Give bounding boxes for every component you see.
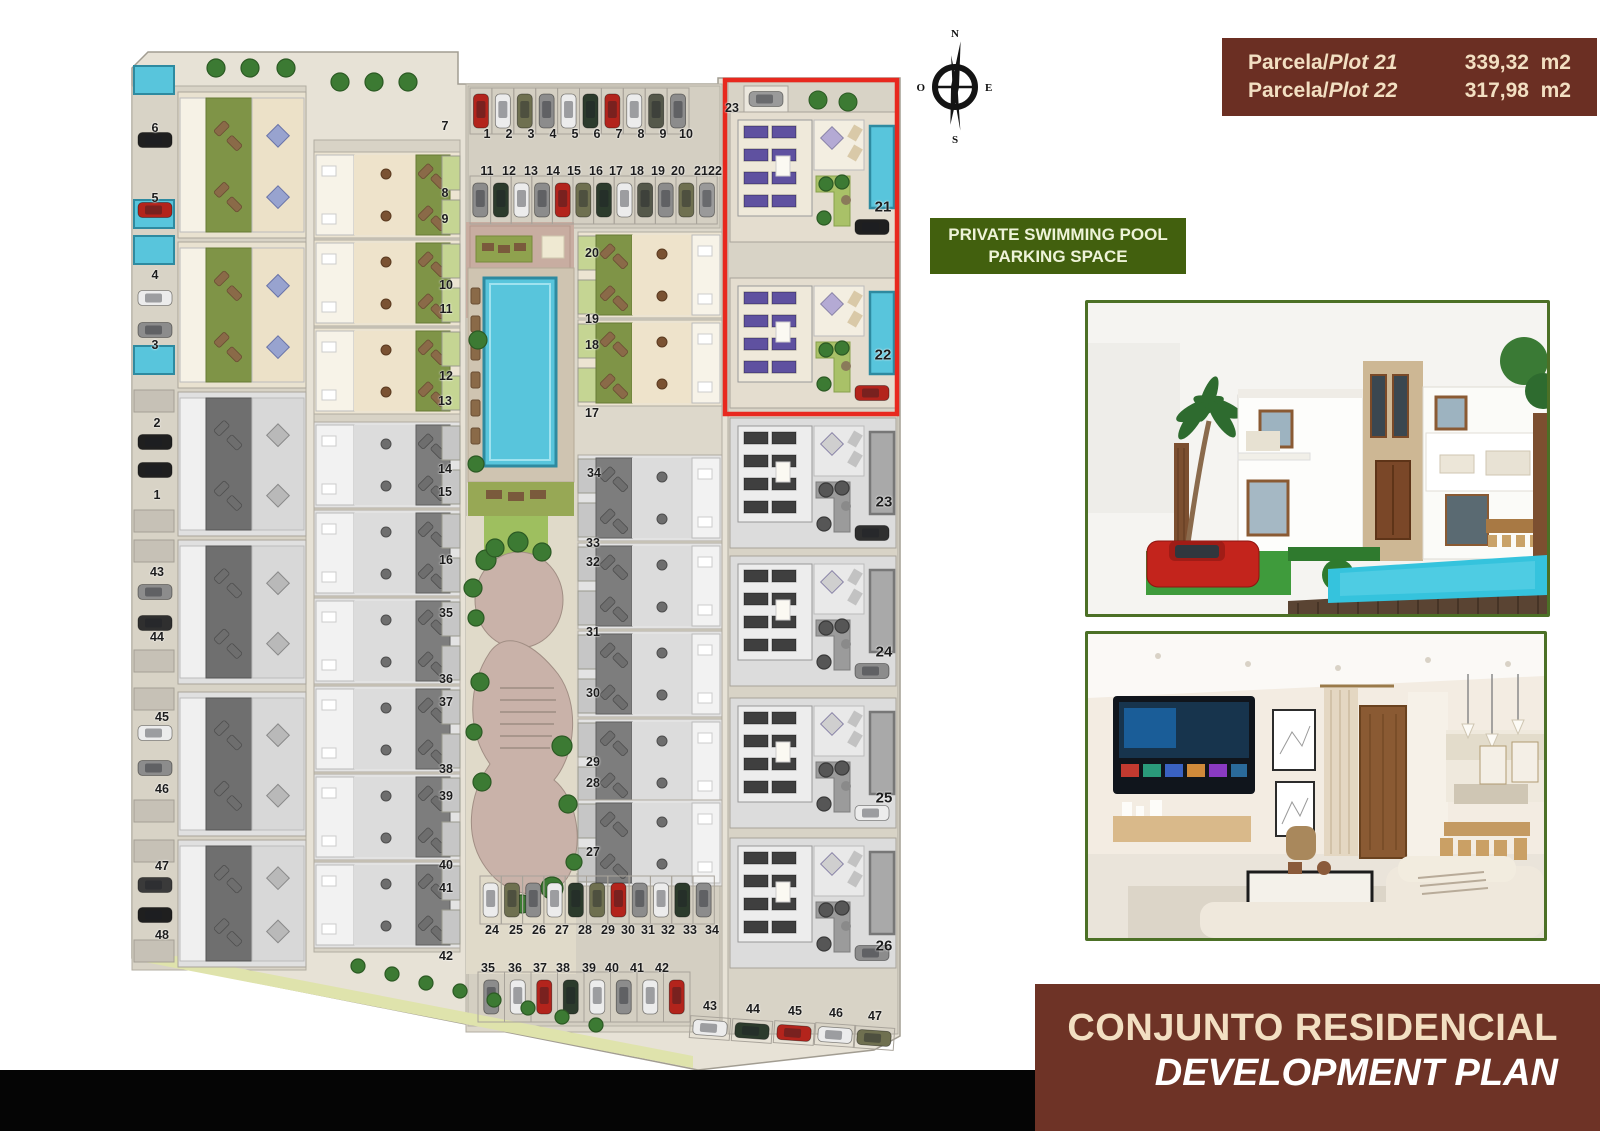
title-banner: CONJUNTO RESIDENCIAL DEVELOPMENT PLAN xyxy=(1035,984,1600,1131)
compass-n: N xyxy=(951,28,959,40)
banner-title-en: DEVELOPMENT PLAN xyxy=(1035,1051,1558,1096)
tv xyxy=(1113,696,1255,794)
red-car xyxy=(1147,541,1259,587)
badge-line-2: PARKING SPACE xyxy=(988,246,1127,268)
development-plan-page: 1234567891011121314151617181920212223789… xyxy=(0,0,1600,1131)
communal-pool-garden xyxy=(464,222,582,974)
plot-info-row-22: Parcela/Plot 22 317,98 m2 xyxy=(1248,78,1571,104)
banner-title-es: CONJUNTO RESIDENCIAL xyxy=(1035,1006,1558,1051)
communal-pool xyxy=(484,278,556,466)
plot-info-box: Parcela/Plot 21 339,32 m2 Parcela/Plot 2… xyxy=(1222,38,1597,116)
townhouse-column-1 xyxy=(314,152,460,948)
bottom-black-bar xyxy=(0,1070,1035,1131)
compass-e: E xyxy=(985,82,992,94)
site-plan-drawing xyxy=(118,40,913,1080)
plot-21-area: 339,32 m2 xyxy=(1465,50,1571,76)
compass-rose: N S E O xyxy=(895,25,1015,145)
right-villa-column xyxy=(730,112,896,968)
site-plan: 1234567891011121314151617181920212223789… xyxy=(118,40,913,1080)
compass-s: S xyxy=(952,134,958,145)
amenities-badge: PRIVATE SWIMMING POOL PARKING SPACE xyxy=(930,218,1186,274)
plot-22-area: 317,98 m2 xyxy=(1465,78,1571,104)
badge-line-1: PRIVATE SWIMMING POOL xyxy=(948,224,1167,246)
compass-o: O xyxy=(916,82,925,94)
interior-living-render xyxy=(1085,631,1547,941)
exterior-villa-render xyxy=(1085,300,1550,617)
townhouse-column-2 xyxy=(578,232,722,886)
plot-info-row-21: Parcela/Plot 21 339,32 m2 xyxy=(1248,50,1571,76)
